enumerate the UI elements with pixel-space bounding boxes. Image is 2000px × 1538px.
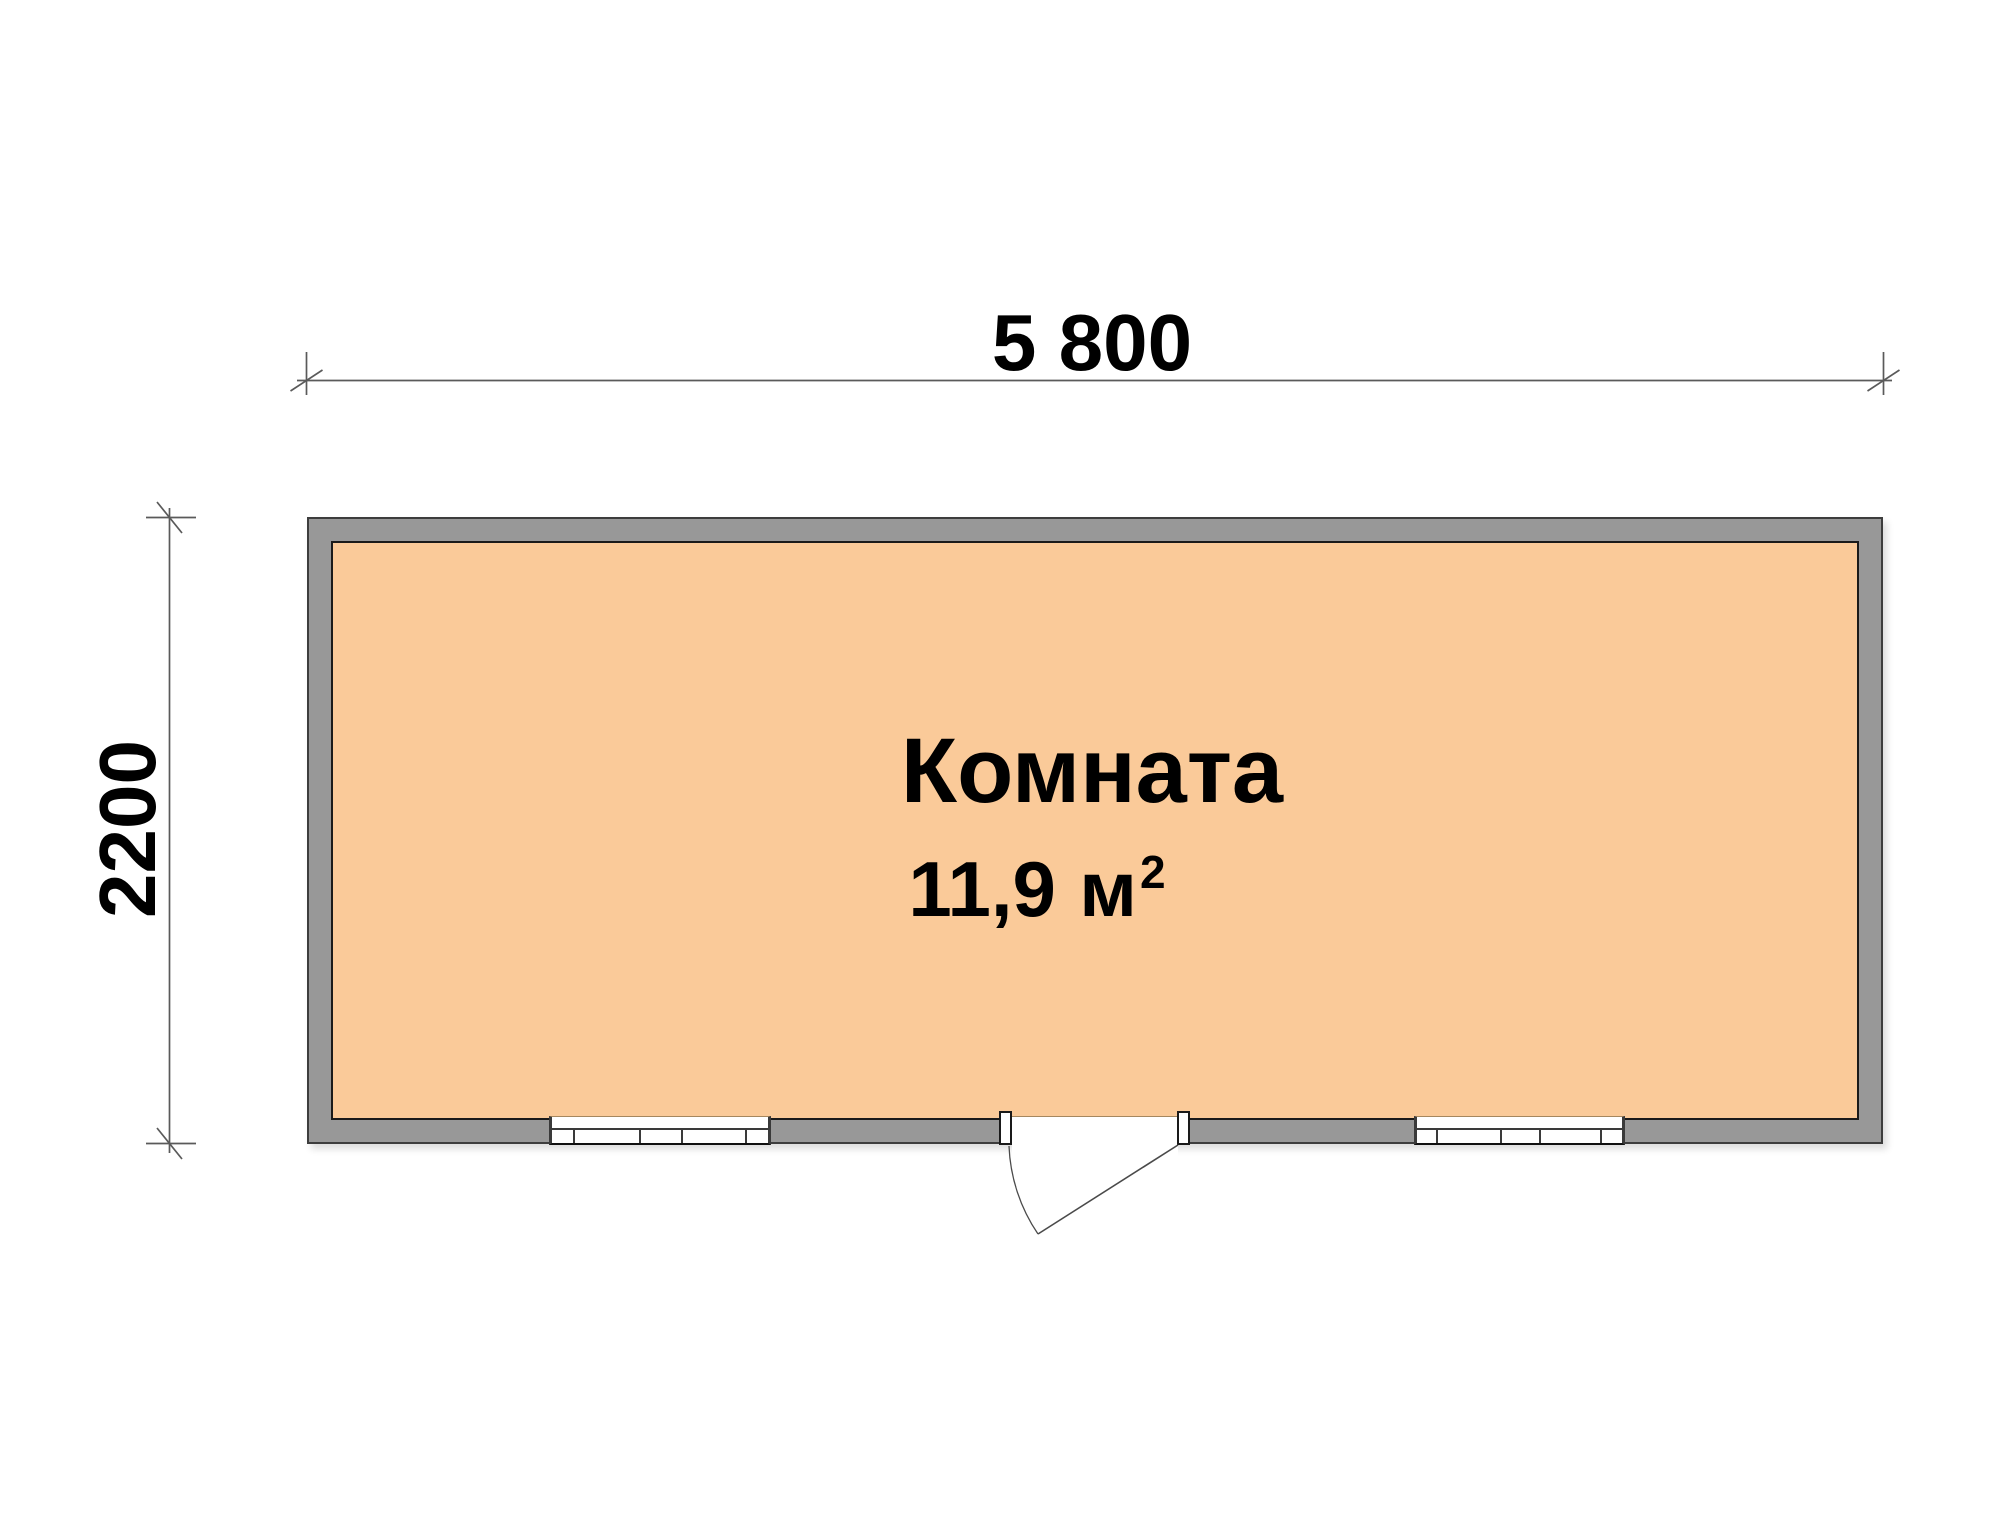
window-right	[1414, 1116, 1625, 1145]
window-left	[549, 1116, 771, 1145]
window-divider	[1539, 1128, 1541, 1143]
room-area-label: 11,9м2	[908, 850, 1165, 928]
window-divider	[1436, 1128, 1438, 1143]
dimension-depth-label: 2200	[88, 740, 168, 918]
room-area-unit: м	[1079, 845, 1137, 933]
window-mullion-line	[1417, 1128, 1622, 1130]
door-opening	[1012, 1116, 1178, 1156]
door-jamb-left	[999, 1111, 1012, 1145]
window-divider	[639, 1128, 641, 1143]
window-divider	[1600, 1128, 1602, 1143]
room-area-value: 11,9	[908, 845, 1056, 933]
window-divider	[573, 1128, 575, 1143]
floorplan-canvas: 5 800 2200 Комната 11,9м2	[0, 0, 2000, 1538]
window-mullion-line	[552, 1128, 768, 1130]
door-swing-symbol	[1009, 1145, 1178, 1234]
dim-tick-top	[157, 502, 182, 533]
door-leaf	[1038, 1145, 1178, 1234]
window-divider	[681, 1128, 683, 1143]
room-area-exponent: 2	[1140, 846, 1166, 898]
door-swing-arc	[1009, 1146, 1038, 1234]
dim-tick-bottom	[157, 1128, 182, 1159]
room-name-label: Комната	[901, 725, 1283, 817]
building-outer-wall	[307, 517, 1883, 1144]
window-divider	[1500, 1128, 1502, 1143]
dimension-width-label: 5 800	[992, 303, 1192, 383]
dim-tick-left	[291, 370, 323, 391]
dim-tick-right	[1868, 370, 1900, 391]
door-jamb-right	[1177, 1111, 1190, 1145]
window-divider	[745, 1128, 747, 1143]
room-interior	[331, 541, 1859, 1120]
